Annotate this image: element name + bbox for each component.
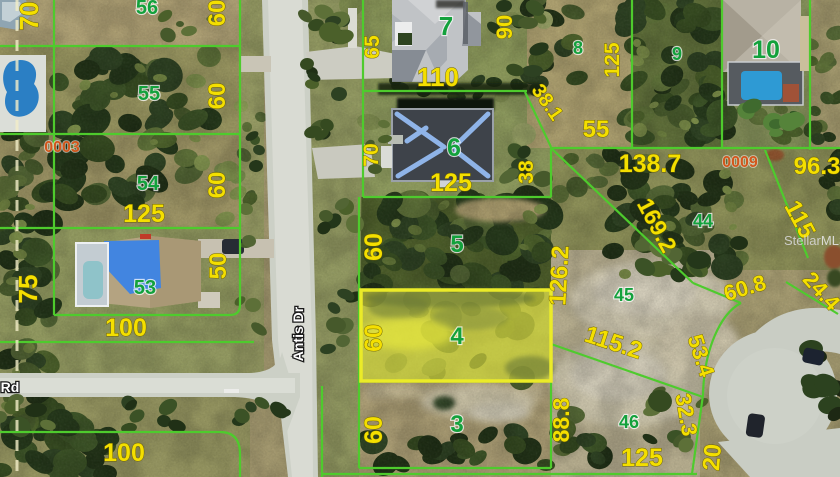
svg-text:55: 55 (583, 116, 610, 143)
svg-text:44: 44 (693, 211, 713, 231)
svg-text:9: 9 (672, 44, 682, 64)
svg-text:10: 10 (752, 36, 780, 64)
svg-text:125: 125 (601, 42, 624, 77)
svg-text:Rd: Rd (1, 379, 20, 395)
svg-text:60: 60 (360, 324, 388, 352)
svg-text:7: 7 (439, 11, 453, 41)
svg-text:110: 110 (417, 62, 459, 92)
svg-text:53: 53 (134, 277, 156, 299)
svg-text:55: 55 (138, 83, 160, 105)
svg-text:96.3: 96.3 (794, 153, 840, 180)
svg-text:50: 50 (205, 253, 232, 280)
svg-text:5: 5 (450, 231, 463, 258)
svg-text:70: 70 (14, 2, 44, 31)
svg-text:126.2: 126.2 (544, 245, 574, 306)
svg-text:70: 70 (360, 143, 383, 166)
svg-text:60: 60 (204, 172, 231, 199)
svg-text:0003: 0003 (44, 139, 80, 156)
svg-text:3: 3 (450, 411, 463, 438)
svg-text:125: 125 (430, 169, 472, 197)
svg-text:4: 4 (450, 323, 464, 350)
svg-text:75: 75 (13, 275, 43, 304)
svg-text:0009: 0009 (722, 154, 758, 171)
svg-text:125: 125 (621, 444, 663, 472)
svg-text:138.7: 138.7 (619, 150, 682, 178)
svg-text:46: 46 (619, 412, 639, 432)
svg-text:StellarMLS: StellarMLS (784, 233, 840, 248)
svg-text:60: 60 (204, 83, 231, 110)
svg-text:20: 20 (698, 443, 727, 472)
svg-text:56: 56 (136, 0, 158, 19)
svg-text:8: 8 (573, 38, 583, 58)
svg-text:60: 60 (360, 233, 388, 261)
svg-text:Antis Dr: Antis Dr (290, 306, 306, 361)
svg-text:60: 60 (360, 416, 388, 444)
svg-text:90: 90 (492, 15, 517, 39)
svg-text:45: 45 (614, 285, 634, 305)
svg-text:100: 100 (103, 439, 145, 467)
svg-text:100: 100 (105, 314, 147, 342)
svg-text:88.8: 88.8 (548, 397, 574, 442)
svg-text:54: 54 (137, 173, 160, 195)
svg-text:65: 65 (361, 35, 384, 59)
svg-text:6: 6 (447, 134, 461, 162)
svg-text:125: 125 (123, 200, 165, 228)
svg-text:38: 38 (515, 160, 538, 184)
svg-text:60: 60 (204, 0, 231, 26)
